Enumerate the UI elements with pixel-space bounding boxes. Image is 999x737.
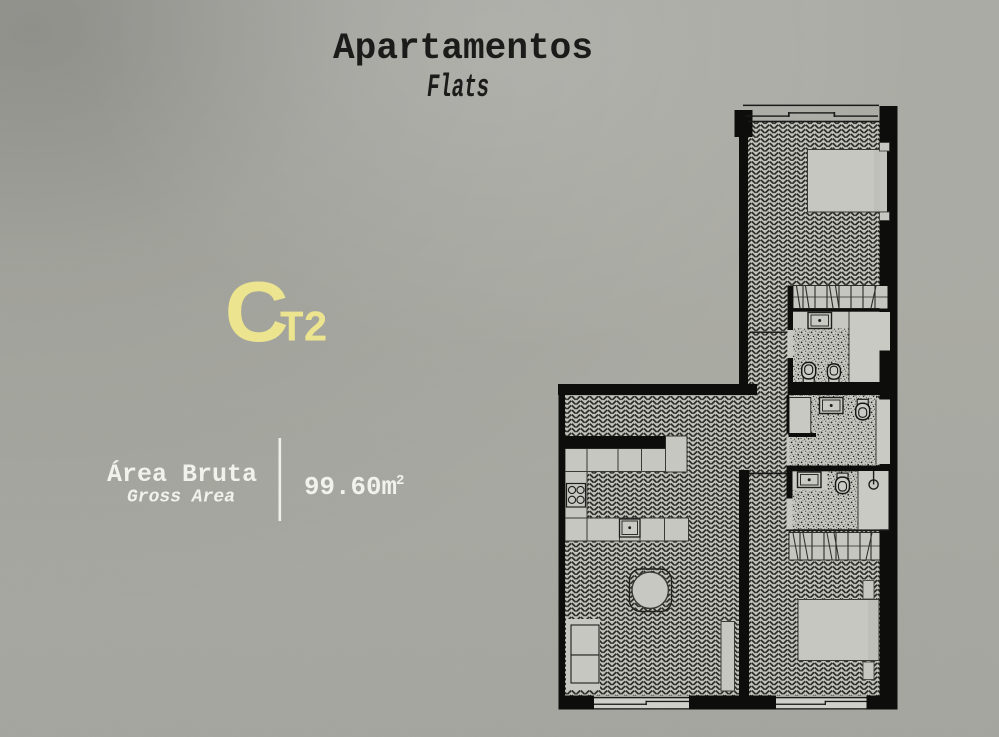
svg-text:T2: T2 <box>279 304 326 354</box>
svg-text:Flats: Flats <box>427 69 489 106</box>
svg-text:2: 2 <box>396 473 404 489</box>
svg-text:Gross Area: Gross Area <box>127 488 235 508</box>
svg-text:Apartamentos: Apartamentos <box>333 28 593 70</box>
svg-text:Área Bruta: Área Bruta <box>107 459 257 489</box>
svg-text:99.60m: 99.60m <box>304 472 397 502</box>
